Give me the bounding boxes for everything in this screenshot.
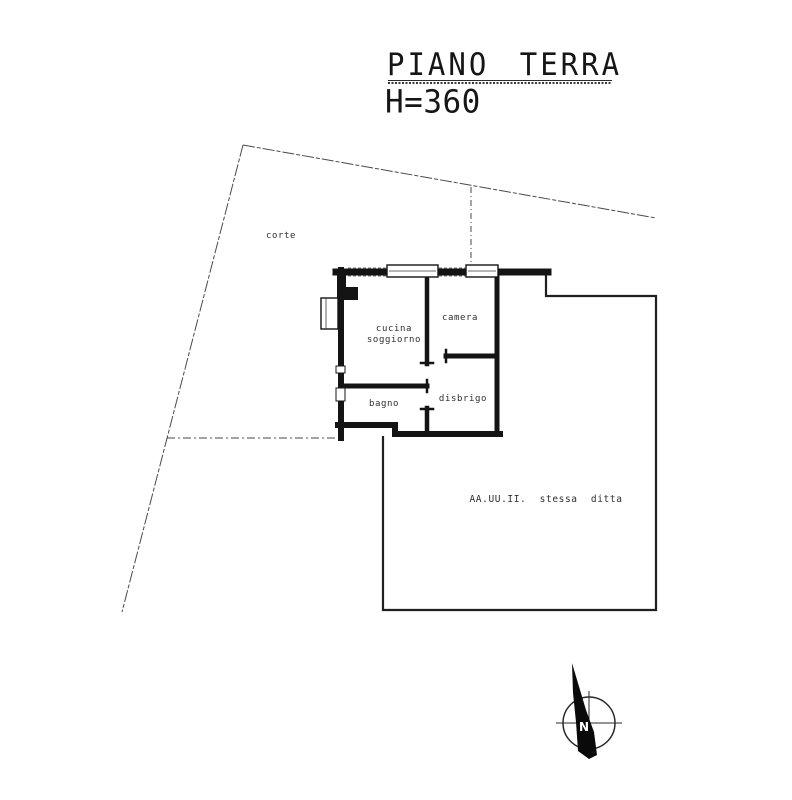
room-label-bagno: bagno (369, 399, 399, 410)
boundary-line-left (122, 145, 243, 612)
boundary-line-top (243, 145, 656, 218)
page-title: PIANO TERRA (387, 46, 622, 83)
room-label-cucina-line2: soggiorno (367, 335, 421, 346)
window-left-wall (321, 298, 338, 329)
adjacent-parcel-outline (383, 270, 656, 610)
room-label-cucina-soggiorno: cucina soggiorno (367, 324, 421, 346)
left-wall-opening (336, 366, 345, 373)
north-compass: N (556, 663, 622, 759)
adjacent-units-note: AA.UU.II. stessa ditta (469, 494, 622, 505)
floorplan-page: N PIANO TERRA H=360 corte cucina soggior… (0, 0, 792, 800)
left-wall-opening (336, 388, 345, 401)
room-label-camera: camera (442, 313, 478, 324)
room-label-cucina-line1: cucina (367, 324, 421, 335)
room-label-corte: corte (266, 231, 296, 242)
building-bottom-wall (338, 425, 500, 434)
north-label: N (579, 720, 589, 734)
room-label-disbrigo: disbrigo (439, 394, 487, 405)
page-subtitle-height: H=360 (385, 84, 481, 121)
title-underline (388, 80, 612, 81)
